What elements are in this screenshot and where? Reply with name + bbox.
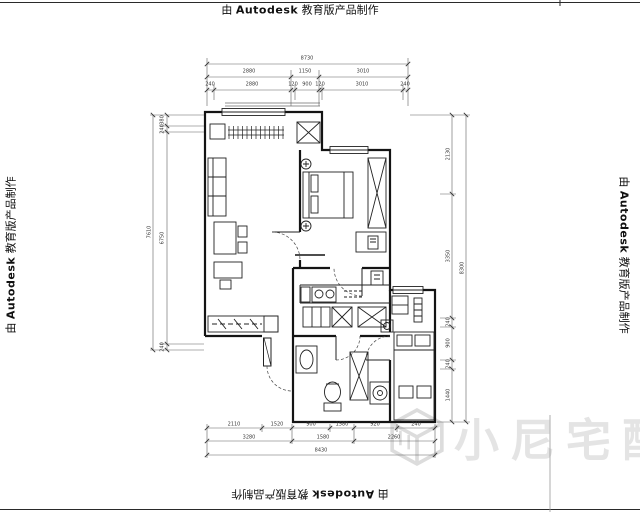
dim-label: 1520 <box>271 423 284 428</box>
watermark-prefix: 由 <box>618 176 631 187</box>
dim-label: 240 <box>161 342 166 352</box>
dim-label: 1580 <box>317 436 330 441</box>
dim-label: 240 <box>447 359 452 369</box>
dim-label: 240 <box>447 317 452 327</box>
dim-label: 3010 <box>357 70 370 75</box>
dim-label: 120 <box>288 83 298 88</box>
watermark-prefix: 由 <box>378 488 389 501</box>
dim-label: 2130 <box>447 148 452 161</box>
dim-label: 900 <box>447 338 452 348</box>
watermark-right: 由 Autodesk 教育版产品制作 <box>619 176 630 333</box>
dim-label: 1580 <box>336 423 349 428</box>
watermark-brand: Autodesk <box>5 257 18 319</box>
watermark-suffix: 教育版产品制作 <box>231 488 308 501</box>
dim-label: 8430 <box>315 449 328 454</box>
dim-label: 2110 <box>228 423 241 428</box>
watermark-suffix: 教育版产品制作 <box>5 176 18 253</box>
dim-label: 3350 <box>447 250 452 263</box>
dim-label: 120 <box>315 83 325 88</box>
watermark-top: 由 Autodesk 教育版产品制作 <box>221 5 378 16</box>
dim-label: 2880 <box>243 70 256 75</box>
dim-label: 2880 <box>246 83 259 88</box>
watermark-prefix: 由 <box>5 323 18 334</box>
dim-label: 240 <box>400 83 410 88</box>
dim-label: 1440 <box>447 389 452 402</box>
dim-label: 920 <box>370 423 380 428</box>
dim-label: 8730 <box>301 57 314 62</box>
dim-label: 900 <box>306 423 316 428</box>
dimension-labels: 8730 2880 1150 3010 240 2880 120 900 120… <box>0 0 640 512</box>
dim-label: 900 <box>302 83 312 88</box>
watermark-brand: Autodesk <box>618 191 631 253</box>
dim-label: 3280 <box>243 436 256 441</box>
dim-label: 240 <box>411 423 421 428</box>
dim-label: 8300 <box>461 262 466 275</box>
watermark-brand: Autodesk <box>312 488 374 501</box>
watermark-suffix: 教育版产品制作 <box>618 257 631 334</box>
watermark-suffix: 教育版产品制作 <box>302 4 379 17</box>
dim-label: 2260 <box>388 436 401 441</box>
dim-label: 240 <box>161 124 166 134</box>
dim-label: 6750 <box>161 232 166 245</box>
watermark-brand: Autodesk <box>236 4 298 17</box>
dim-label: 3010 <box>356 83 369 88</box>
watermark-left: 由 Autodesk 教育版产品制作 <box>6 176 17 333</box>
watermark-prefix: 由 <box>221 4 232 17</box>
dim-label: 240 <box>205 83 215 88</box>
dim-label: 7610 <box>148 226 153 239</box>
drawing-sheet: 小尼宅配 <box>0 0 640 512</box>
watermark-bottom: 由 Autodesk 教育版产品制作 <box>231 489 388 500</box>
dim-label: 1150 <box>299 70 312 75</box>
